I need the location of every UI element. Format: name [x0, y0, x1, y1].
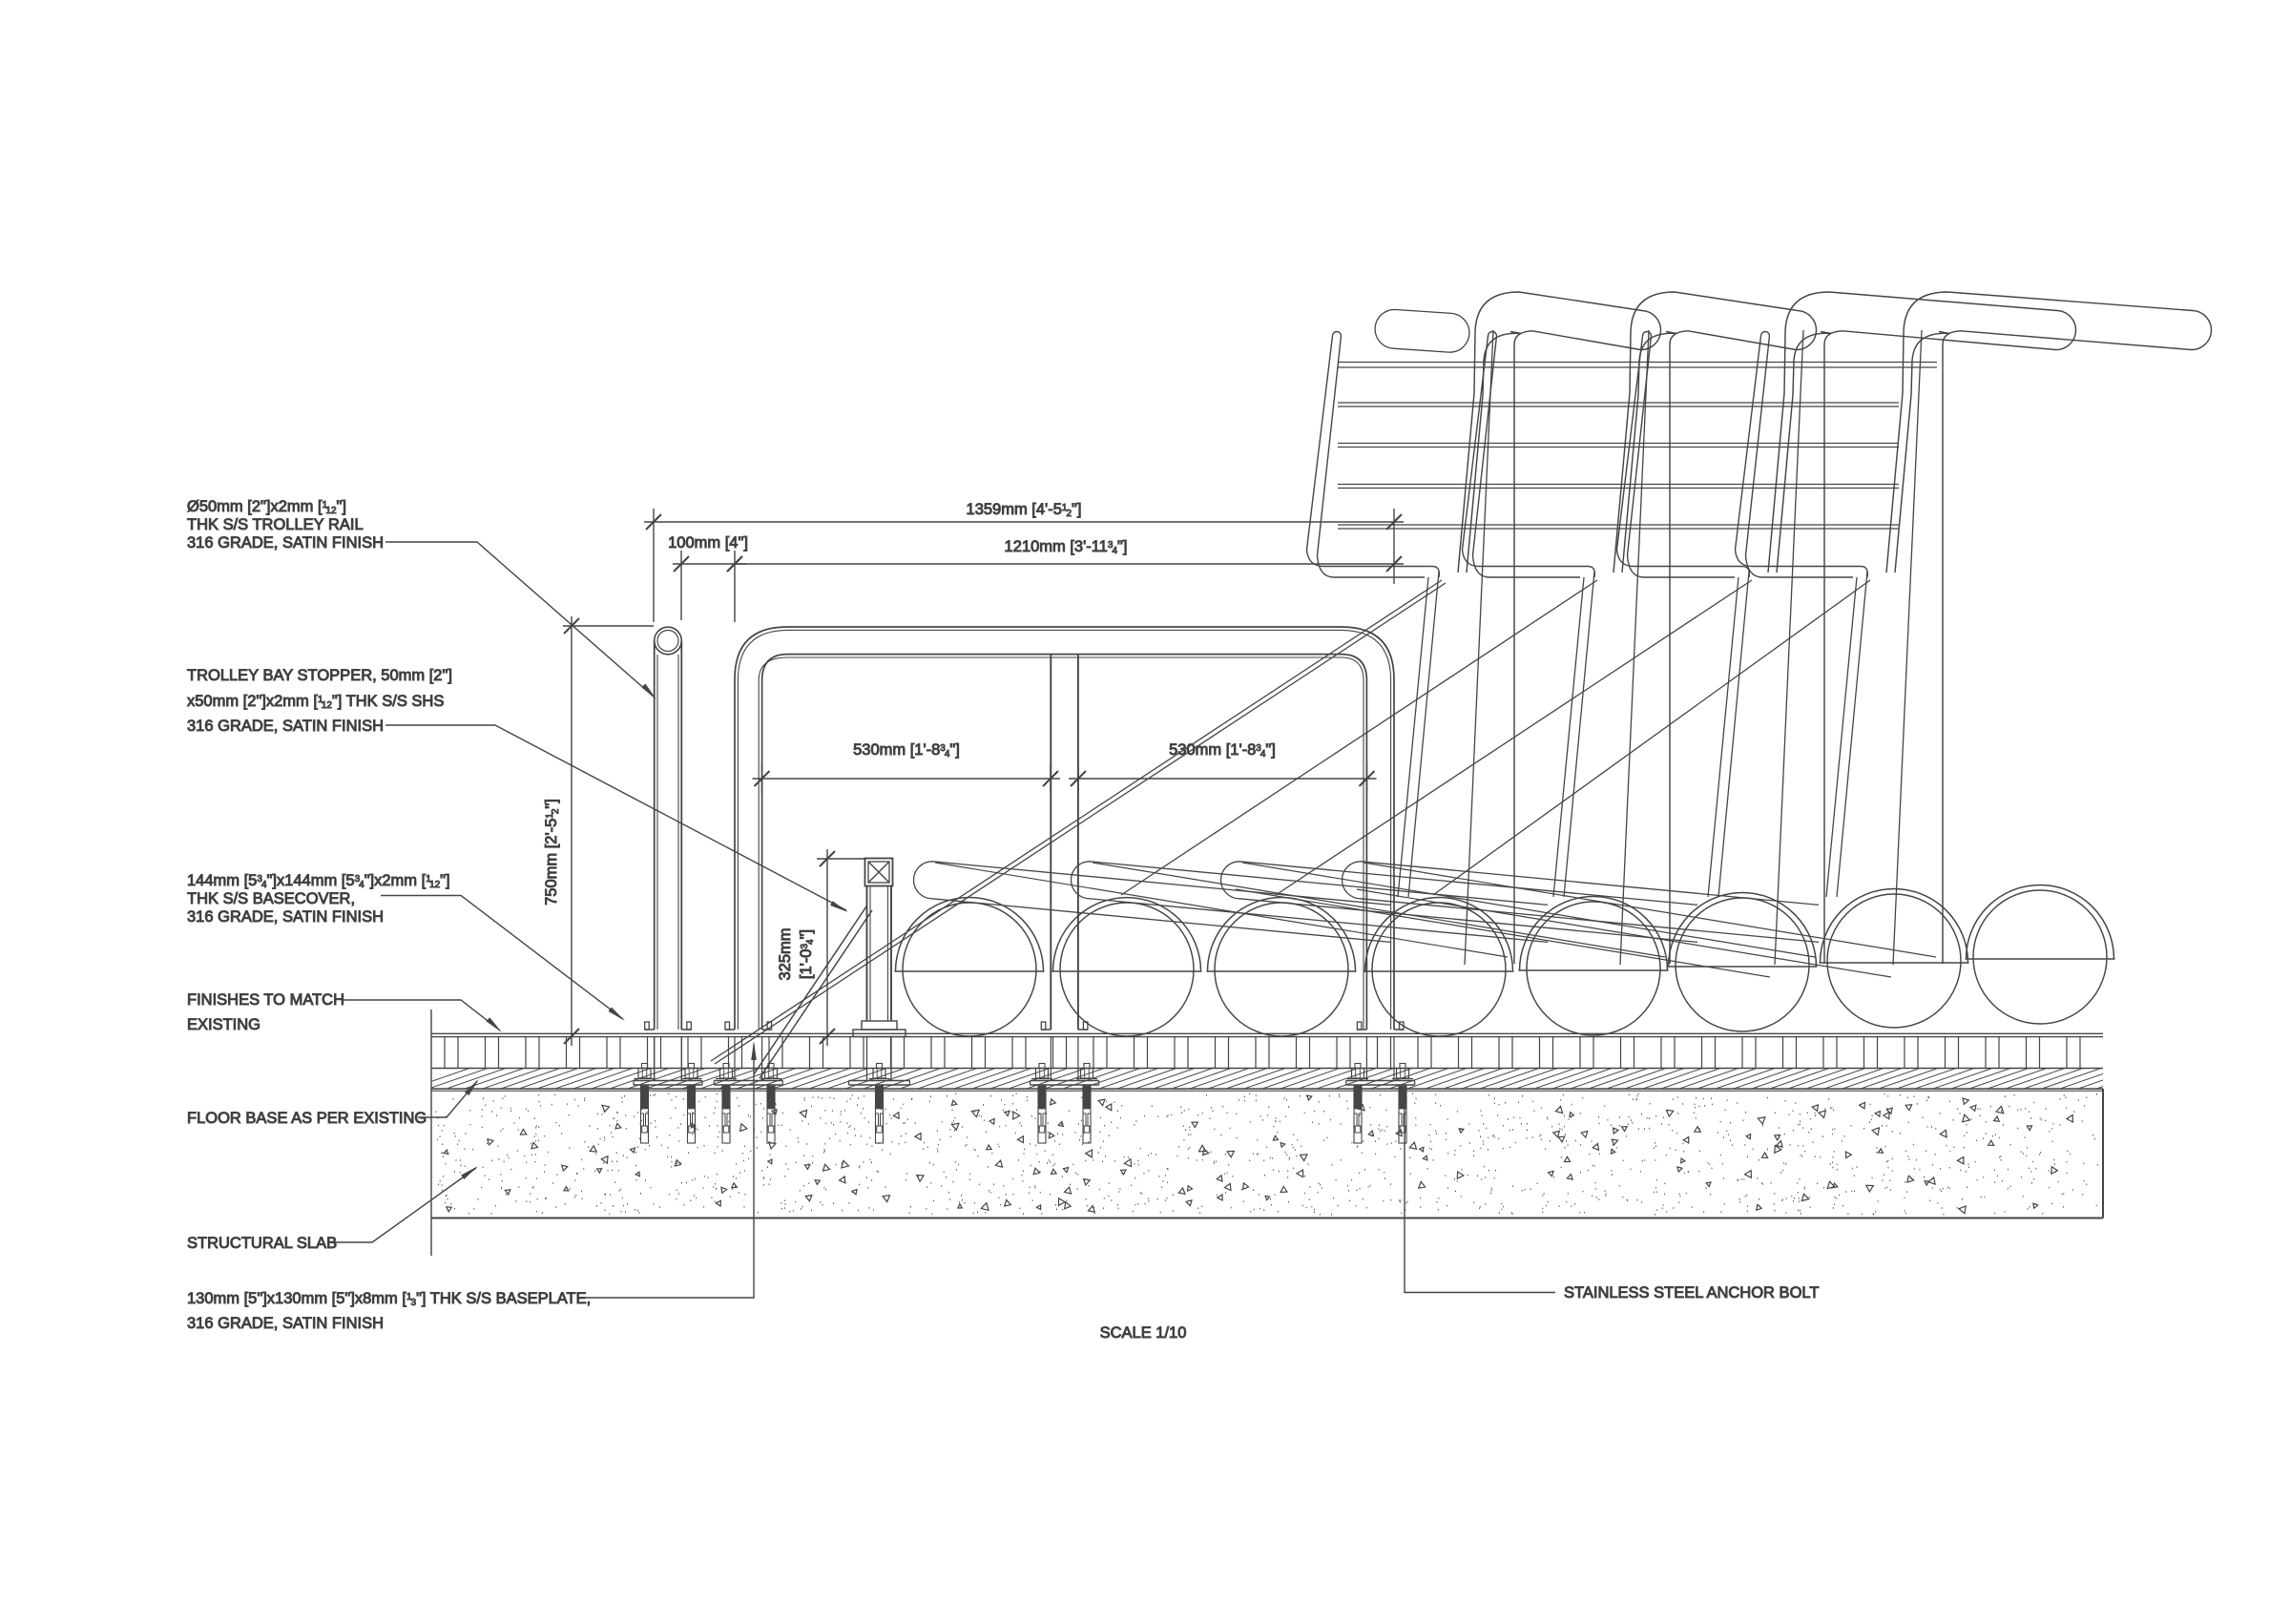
svg-text:STRUCTURAL SLAB: STRUCTURAL SLAB — [187, 1235, 337, 1252]
svg-text:130mm [5"]x130mm [5"]x8mm [13": 130mm [5"]x130mm [5"]x8mm [13"] THK S/S … — [187, 1290, 591, 1308]
svg-text:TROLLEY BAY STOPPER, 50mm [2"]: TROLLEY BAY STOPPER, 50mm [2"] — [187, 667, 452, 684]
svg-text:FINISHES TO MATCH: FINISHES TO MATCH — [187, 991, 344, 1009]
svg-text:316 GRADE, SATIN FINISH: 316 GRADE, SATIN FINISH — [187, 534, 384, 552]
svg-text:316 GRADE, SATIN FINISH: 316 GRADE, SATIN FINISH — [187, 1315, 384, 1332]
svg-text:100mm [4"]: 100mm [4"] — [668, 534, 748, 552]
svg-text:THK S/S TROLLEY RAIL: THK S/S TROLLEY RAIL — [187, 516, 364, 533]
svg-text:STAINLESS STEEL ANCHOR BOLT: STAINLESS STEEL ANCHOR BOLT — [1564, 1284, 1819, 1301]
svg-text:THK S/S BASECOVER,: THK S/S BASECOVER, — [187, 890, 355, 907]
svg-text:x50mm [2"]x2mm [112"] THK S/S: x50mm [2"]x2mm [112"] THK S/S SHS — [187, 693, 444, 711]
svg-text:[1'-034"]: [1'-034"] — [798, 929, 816, 979]
svg-text:530mm [1'-834"]: 530mm [1'-834"] — [853, 741, 960, 760]
svg-text:SCALE 1/10: SCALE 1/10 — [1100, 1324, 1187, 1342]
svg-text:325mm: 325mm — [777, 927, 794, 980]
svg-text:750mm [2'-512"]: 750mm [2'-512"] — [543, 799, 561, 906]
svg-text:144mm [534"]x144mm [534"]x2mm: 144mm [534"]x144mm [534"]x2mm [112"] — [187, 872, 450, 890]
svg-text:316 GRADE, SATIN FINISH: 316 GRADE, SATIN FINISH — [187, 908, 384, 926]
svg-text:EXISTING: EXISTING — [187, 1016, 260, 1033]
svg-text:530mm [1'-834"]: 530mm [1'-834"] — [1169, 741, 1276, 760]
svg-text:316 GRADE, SATIN FINISH: 316 GRADE, SATIN FINISH — [187, 718, 384, 735]
svg-text:FLOOR BASE AS PER EXISTING: FLOOR BASE AS PER EXISTING — [187, 1110, 427, 1127]
